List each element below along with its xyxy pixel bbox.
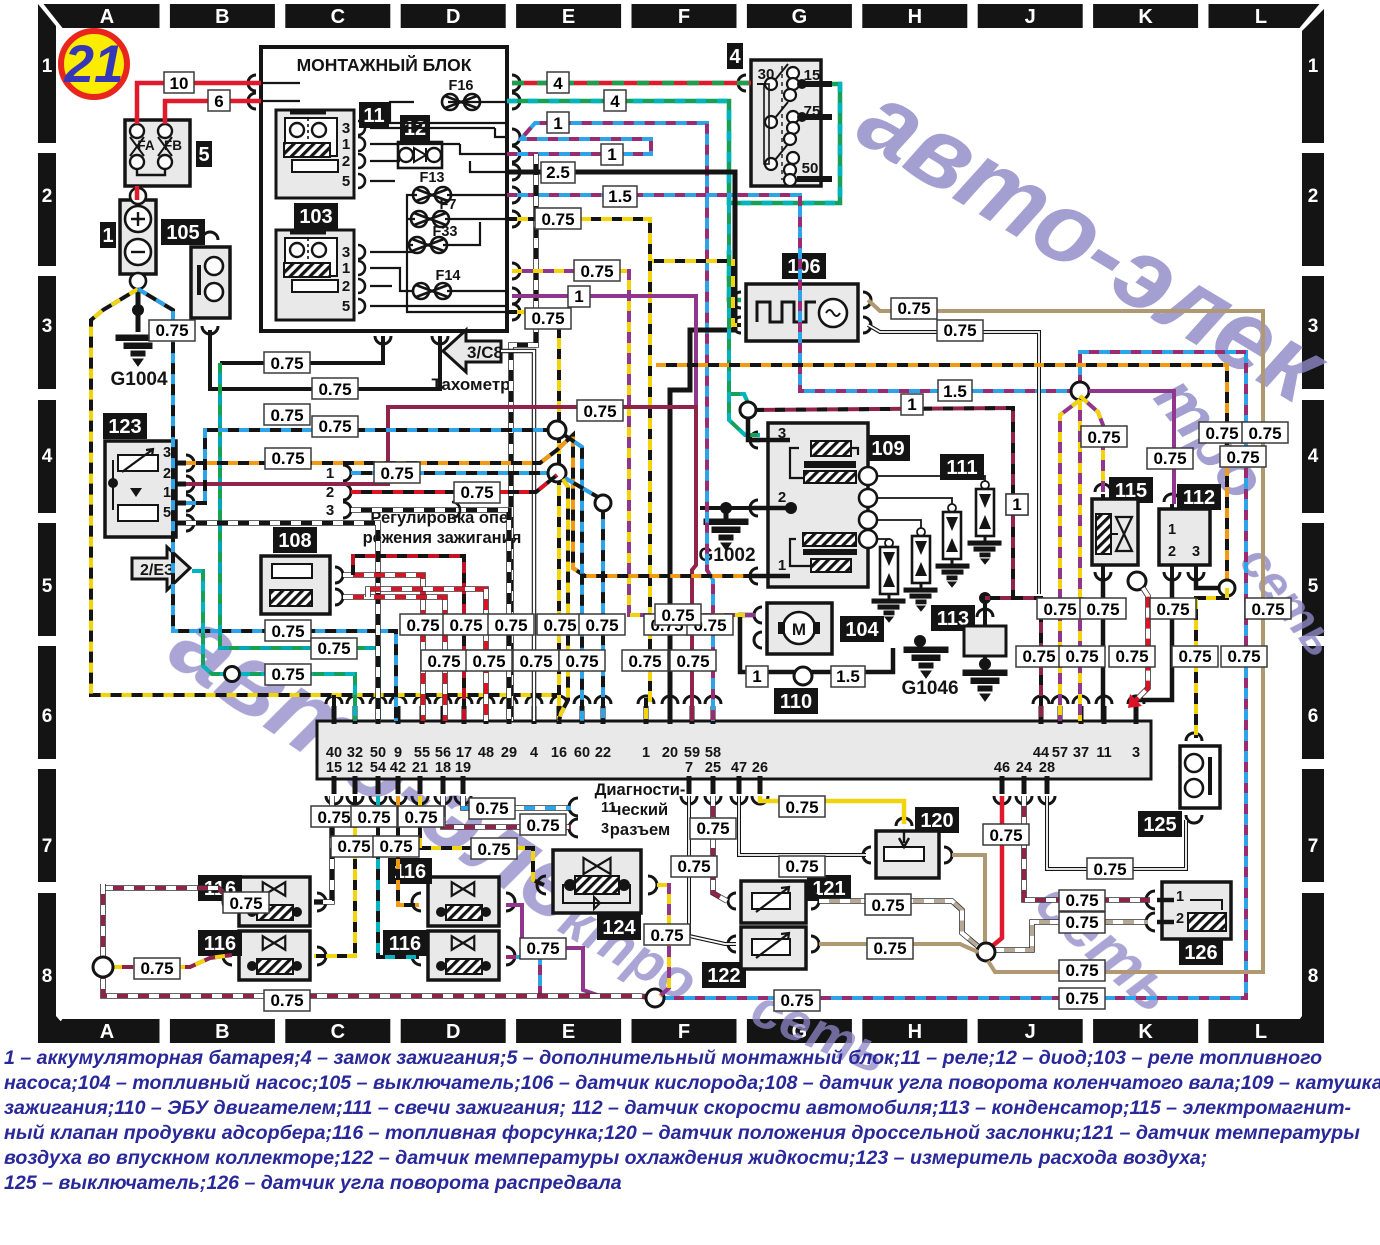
svg-text:0.75: 0.75 — [140, 959, 173, 978]
svg-text:L: L — [1255, 6, 1267, 28]
svg-text:0.75: 0.75 — [871, 896, 904, 915]
svg-text:B: B — [215, 1021, 229, 1043]
svg-text:0.75: 0.75 — [1093, 860, 1126, 879]
svg-text:МОНТАЖНЫЙ БЛОК: МОНТАЖНЫЙ БЛОК — [297, 54, 472, 75]
svg-text:J: J — [1025, 6, 1036, 28]
svg-text:4: 4 — [610, 92, 620, 111]
svg-text:0.75: 0.75 — [943, 321, 976, 340]
svg-text:24: 24 — [1016, 760, 1032, 776]
svg-text:насоса;104 – топливный насос;1: насоса;104 – топливный насос;105 – выклю… — [4, 1072, 1380, 1094]
svg-text:37: 37 — [1073, 745, 1089, 761]
svg-text:47: 47 — [731, 760, 747, 776]
svg-text:4: 4 — [1308, 446, 1319, 467]
svg-text:3: 3 — [342, 244, 350, 261]
svg-text:29: 29 — [501, 745, 517, 761]
svg-text:1.5: 1.5 — [608, 187, 632, 206]
svg-text:48: 48 — [478, 745, 494, 761]
svg-text:0.75: 0.75 — [526, 939, 559, 958]
svg-text:режения зажигания: режения зажигания — [363, 529, 522, 547]
svg-text:0.75: 0.75 — [989, 826, 1022, 845]
svg-text:5: 5 — [198, 144, 209, 166]
svg-text:F14: F14 — [436, 268, 461, 284]
svg-text:7: 7 — [42, 836, 53, 857]
svg-text:28: 28 — [1039, 760, 1055, 776]
svg-text:0.75: 0.75 — [873, 939, 906, 958]
svg-text:55: 55 — [414, 745, 430, 761]
svg-text:10: 10 — [170, 74, 189, 93]
svg-text:Диагности-: Диагности- — [595, 781, 686, 799]
svg-text:1: 1 — [342, 136, 350, 153]
svg-text:20: 20 — [662, 745, 678, 761]
svg-text:16: 16 — [551, 745, 567, 761]
svg-text:5: 5 — [163, 505, 171, 521]
svg-text:1: 1 — [778, 557, 786, 574]
svg-text:0.75: 0.75 — [1065, 961, 1098, 980]
svg-text:G: G — [792, 6, 808, 28]
svg-text:106: 106 — [787, 256, 820, 278]
svg-text:123: 123 — [108, 416, 141, 438]
svg-text:2: 2 — [1176, 911, 1184, 927]
svg-text:3: 3 — [326, 502, 334, 519]
svg-text:6: 6 — [42, 706, 53, 727]
svg-text:J: J — [1025, 1021, 1036, 1043]
svg-text:0.75: 0.75 — [1065, 989, 1098, 1008]
svg-text:3: 3 — [601, 821, 609, 837]
svg-text:0.75: 0.75 — [580, 262, 613, 281]
svg-text:0.75: 0.75 — [270, 354, 303, 373]
svg-text:0.75: 0.75 — [475, 799, 508, 818]
svg-text:4: 4 — [729, 46, 741, 68]
svg-text:0.75: 0.75 — [650, 926, 683, 945]
svg-text:3/C8: 3/C8 — [467, 343, 503, 362]
svg-text:разъем: разъем — [610, 821, 670, 839]
svg-text:5: 5 — [42, 576, 53, 597]
svg-text:2: 2 — [342, 153, 350, 170]
svg-text:2: 2 — [163, 466, 171, 482]
svg-text:ный клапан продувки адсорбера;: ный клапан продувки адсорбера;116 – топл… — [4, 1122, 1360, 1144]
svg-text:A: A — [100, 1021, 114, 1043]
svg-text:112: 112 — [1183, 487, 1215, 509]
svg-text:1: 1 — [102, 225, 113, 247]
svg-text:L: L — [1255, 1021, 1267, 1043]
svg-text:8: 8 — [1308, 966, 1319, 987]
svg-text:1: 1 — [553, 114, 562, 133]
svg-text:H: H — [908, 1021, 922, 1043]
svg-text:FB: FB — [164, 138, 182, 153]
svg-text:104: 104 — [845, 619, 879, 641]
svg-text:0.75: 0.75 — [270, 406, 303, 425]
svg-text:4: 4 — [553, 74, 563, 93]
svg-text:60: 60 — [574, 745, 590, 761]
svg-text:12: 12 — [347, 760, 363, 776]
svg-text:19: 19 — [455, 760, 471, 776]
svg-text:21: 21 — [64, 35, 124, 94]
svg-text:0.75: 0.75 — [460, 483, 493, 502]
svg-text:1: 1 — [1308, 56, 1319, 77]
svg-text:56: 56 — [435, 745, 451, 761]
svg-text:0.75: 0.75 — [526, 816, 559, 835]
svg-text:7: 7 — [1308, 836, 1319, 857]
svg-text:40: 40 — [326, 745, 342, 761]
svg-text:C: C — [331, 6, 345, 28]
svg-text:1: 1 — [642, 745, 650, 761]
svg-text:F33: F33 — [433, 224, 458, 240]
svg-text:0.75: 0.75 — [785, 857, 818, 876]
svg-text:2: 2 — [42, 186, 53, 207]
svg-text:21: 21 — [412, 760, 428, 776]
svg-text:0.75: 0.75 — [1227, 647, 1260, 666]
svg-text:3: 3 — [1192, 544, 1200, 560]
svg-text:1 – аккумуляторная батарея;4 –: 1 – аккумуляторная батарея;4 – замок заж… — [4, 1047, 1322, 1069]
svg-text:1.5: 1.5 — [943, 382, 967, 401]
svg-text:0.75: 0.75 — [1087, 428, 1120, 447]
svg-text:A: A — [100, 6, 114, 28]
svg-text:22: 22 — [595, 745, 611, 761]
svg-text:3: 3 — [1132, 745, 1140, 761]
svg-text:G1004: G1004 — [110, 369, 167, 390]
svg-text:B: B — [215, 6, 229, 28]
svg-text:0.75: 0.75 — [1043, 600, 1076, 619]
svg-text:105: 105 — [166, 222, 199, 244]
svg-text:0.75: 0.75 — [897, 299, 930, 318]
svg-text:9: 9 — [394, 745, 402, 761]
svg-text:26: 26 — [752, 760, 768, 776]
svg-text:4: 4 — [42, 446, 53, 467]
svg-text:0.75: 0.75 — [1205, 424, 1238, 443]
svg-text:0.75: 0.75 — [677, 857, 710, 876]
svg-text:1: 1 — [1168, 522, 1176, 538]
svg-text:32: 32 — [347, 745, 363, 761]
svg-text:E: E — [562, 1021, 575, 1043]
svg-text:0.75: 0.75 — [449, 616, 482, 635]
svg-text:1: 1 — [752, 667, 761, 686]
svg-text:0.75: 0.75 — [519, 652, 552, 671]
svg-text:116: 116 — [204, 933, 236, 955]
svg-text:FA: FA — [137, 138, 155, 153]
svg-text:50: 50 — [802, 160, 819, 177]
svg-text:0.75: 0.75 — [1022, 647, 1055, 666]
svg-text:0.75: 0.75 — [676, 652, 709, 671]
svg-text:F: F — [678, 1021, 690, 1043]
svg-text:0.75: 0.75 — [543, 616, 576, 635]
svg-text:0.75: 0.75 — [406, 616, 439, 635]
svg-text:110: 110 — [780, 691, 812, 713]
svg-text:F7: F7 — [440, 197, 457, 213]
svg-text:1: 1 — [342, 260, 350, 277]
svg-text:58: 58 — [705, 745, 721, 761]
svg-text:0.75: 0.75 — [271, 622, 304, 641]
svg-text:0.75: 0.75 — [270, 991, 303, 1010]
svg-text:0.75: 0.75 — [404, 808, 437, 827]
svg-text:0.75: 0.75 — [494, 616, 527, 635]
svg-text:0.75: 0.75 — [1178, 647, 1211, 666]
svg-text:0.75: 0.75 — [229, 894, 262, 913]
svg-text:0.75: 0.75 — [785, 798, 818, 817]
svg-text:D: D — [446, 6, 460, 28]
svg-text:2: 2 — [1308, 186, 1319, 207]
svg-text:108: 108 — [278, 530, 311, 552]
svg-text:2: 2 — [778, 489, 786, 506]
svg-text:0.75: 0.75 — [585, 616, 618, 635]
svg-text:8: 8 — [42, 966, 53, 987]
svg-text:0.75: 0.75 — [1065, 913, 1098, 932]
svg-text:2: 2 — [1168, 544, 1176, 560]
svg-text:46: 46 — [994, 760, 1010, 776]
svg-text:Тахометр: Тахометр — [431, 375, 510, 394]
svg-text:0.75: 0.75 — [628, 652, 661, 671]
svg-text:0.75: 0.75 — [1065, 891, 1098, 910]
svg-text:109: 109 — [871, 438, 904, 460]
svg-text:5: 5 — [342, 173, 350, 190]
svg-text:K: K — [1138, 6, 1153, 28]
svg-text:0.75: 0.75 — [541, 210, 574, 229]
svg-text:15: 15 — [326, 760, 342, 776]
svg-text:0.75: 0.75 — [380, 464, 413, 483]
svg-text:122: 122 — [707, 965, 740, 987]
svg-text:124: 124 — [602, 917, 636, 939]
svg-text:0.75: 0.75 — [1251, 600, 1284, 619]
svg-text:0.75: 0.75 — [472, 652, 505, 671]
svg-text:0.75: 0.75 — [379, 837, 412, 856]
svg-text:6: 6 — [214, 92, 223, 111]
svg-text:25: 25 — [705, 760, 721, 776]
svg-text:0.75: 0.75 — [337, 837, 370, 856]
svg-text:1: 1 — [907, 395, 916, 414]
svg-text:18: 18 — [435, 760, 451, 776]
svg-text:0.75: 0.75 — [565, 652, 598, 671]
svg-text:42: 42 — [390, 760, 406, 776]
svg-text:M: M — [792, 620, 806, 639]
svg-text:17: 17 — [456, 745, 472, 761]
svg-text:1: 1 — [607, 145, 616, 164]
svg-text:0.75: 0.75 — [696, 819, 729, 838]
svg-text:125 – выключатель;126 – датчик: 125 – выключатель;126 – датчик угла пово… — [4, 1172, 622, 1194]
svg-text:F13: F13 — [420, 170, 445, 186]
svg-text:1: 1 — [42, 56, 53, 77]
svg-text:6: 6 — [1308, 706, 1319, 727]
svg-text:0.75: 0.75 — [427, 652, 460, 671]
svg-text:0.75: 0.75 — [1115, 647, 1148, 666]
svg-text:4: 4 — [530, 745, 538, 761]
svg-text:0.75: 0.75 — [780, 991, 813, 1010]
svg-text:44: 44 — [1033, 745, 1049, 761]
svg-text:7: 7 — [685, 760, 693, 776]
svg-text:0.75: 0.75 — [1065, 647, 1098, 666]
svg-text:1.5: 1.5 — [836, 667, 860, 686]
svg-text:0.75: 0.75 — [531, 309, 564, 328]
svg-text:воздуха во впускном коллекторе: воздуха во впускном коллекторе;122 – дат… — [4, 1147, 1207, 1169]
svg-text:0.75: 0.75 — [155, 321, 188, 340]
svg-text:0.75: 0.75 — [318, 417, 351, 436]
svg-text:0.75: 0.75 — [271, 449, 304, 468]
svg-text:1: 1 — [163, 485, 171, 501]
svg-text:50: 50 — [370, 745, 386, 761]
svg-text:54: 54 — [370, 760, 386, 776]
svg-text:ческий: ческий — [612, 801, 668, 819]
svg-text:0.75: 0.75 — [318, 380, 351, 399]
svg-text:зажигания;110 – ЭБУ двигателем: зажигания;110 – ЭБУ двигателем;111 – све… — [4, 1097, 1351, 1119]
svg-text:11: 11 — [363, 105, 384, 127]
svg-text:0.75: 0.75 — [1153, 449, 1186, 468]
svg-text:F16: F16 — [449, 78, 474, 94]
svg-text:0.75: 0.75 — [357, 808, 390, 827]
svg-text:0.75: 0.75 — [661, 606, 694, 625]
svg-text:2/ЕЗ: 2/ЕЗ — [140, 562, 174, 579]
svg-text:0.75: 0.75 — [477, 840, 510, 859]
svg-text:125: 125 — [1143, 814, 1176, 836]
svg-text:116: 116 — [389, 933, 421, 955]
svg-text:0.75: 0.75 — [1248, 424, 1281, 443]
svg-text:2: 2 — [326, 484, 334, 501]
svg-text:G1046: G1046 — [901, 678, 958, 699]
svg-text:59: 59 — [684, 745, 700, 761]
svg-text:C: C — [331, 1021, 345, 1043]
svg-text:2: 2 — [342, 278, 350, 295]
svg-text:0.75: 0.75 — [583, 402, 616, 421]
svg-text:103: 103 — [299, 206, 332, 228]
svg-text:0.75: 0.75 — [317, 639, 350, 658]
svg-text:H: H — [908, 6, 922, 28]
svg-text:0.75: 0.75 — [1226, 448, 1259, 467]
svg-text:3: 3 — [42, 316, 53, 337]
svg-text:E: E — [562, 6, 575, 28]
svg-text:1: 1 — [1012, 495, 1021, 514]
svg-text:120: 120 — [920, 810, 953, 832]
svg-text:0.75: 0.75 — [1156, 600, 1189, 619]
svg-text:2.5: 2.5 — [546, 163, 570, 182]
svg-text:1: 1 — [326, 465, 334, 482]
svg-text:3: 3 — [163, 445, 171, 461]
svg-text:1: 1 — [1176, 889, 1184, 905]
svg-text:0.75: 0.75 — [271, 665, 304, 684]
svg-text:11: 11 — [1096, 745, 1111, 761]
svg-text:D: D — [446, 1021, 460, 1043]
svg-text:57: 57 — [1052, 745, 1068, 761]
svg-text:F: F — [678, 6, 690, 28]
svg-text:0.75: 0.75 — [1086, 600, 1119, 619]
svg-text:0.75: 0.75 — [317, 808, 350, 827]
svg-text:1: 1 — [574, 287, 583, 306]
svg-text:5: 5 — [342, 298, 350, 315]
svg-text:3: 3 — [342, 120, 350, 137]
svg-text:126: 126 — [1184, 942, 1217, 964]
